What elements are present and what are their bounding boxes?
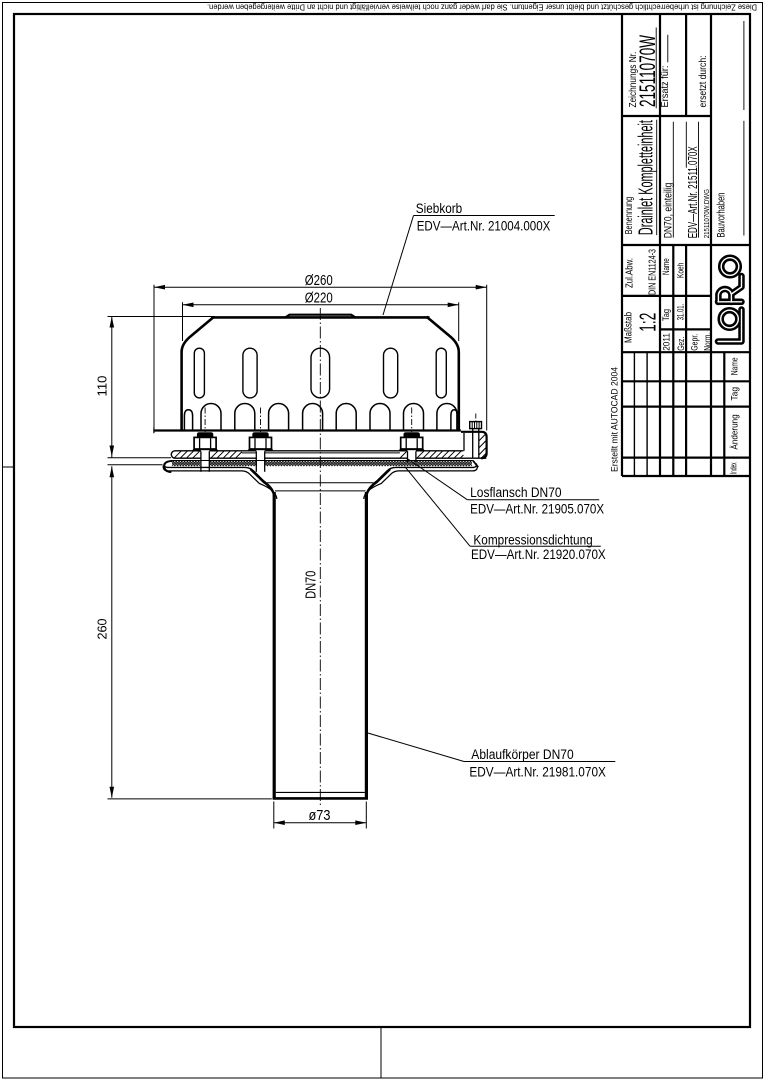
svg-text:Tag: Tag [730, 387, 741, 401]
svg-text:EDV—Art.Nr. 21004.000X: EDV—Art.Nr. 21004.000X [417, 218, 551, 233]
svg-text:Name: Name [661, 258, 672, 275]
svg-text:Name: Name [730, 358, 741, 376]
svg-text:DN70, einteilig: DN70, einteilig [663, 183, 675, 239]
svg-text:Ablaufkörper DN70: Ablaufkörper DN70 [471, 747, 573, 762]
svg-text:Losflansch DN70: Losflansch DN70 [470, 485, 561, 500]
svg-text:110: 110 [95, 376, 110, 397]
svg-text:DIN EN1124-3: DIN EN1124-3 [647, 249, 659, 295]
svg-text:Koeh: Koeh [676, 263, 687, 278]
svg-text:Tag: Tag [661, 309, 672, 321]
svg-text:EDV—Art.Nr. 21511.070X: EDV—Art.Nr. 21511.070X [686, 146, 700, 238]
svg-text:Ø220: Ø220 [305, 291, 333, 307]
svg-text:Drainlet Kompletteinheit: Drainlet Kompletteinheit [636, 120, 658, 235]
svg-text:21511070W.DWG: 21511070W.DWG [702, 189, 711, 238]
svg-text:1:2: 1:2 [635, 313, 661, 332]
svg-text:Maßstab: Maßstab [624, 312, 635, 343]
svg-text:Index: Index [729, 462, 740, 474]
svg-text:Erstellt mit AUTOCAD 2004: Erstellt mit AUTOCAD 2004 [610, 367, 620, 472]
svg-text:Gez.: Gez. [676, 337, 687, 351]
svg-text:Bauvorhaben: Bauvorhaben [716, 193, 728, 238]
svg-text:Kompressionsdichtung: Kompressionsdichtung [473, 532, 592, 547]
svg-text:ø73: ø73 [309, 808, 331, 824]
svg-text:Änderung: Änderung [730, 414, 741, 449]
svg-text:EDV—Art.Nr. 21905.070X: EDV—Art.Nr. 21905.070X [470, 501, 604, 516]
svg-text:Ø260: Ø260 [305, 273, 333, 289]
svg-text:Diese Zeichnung ist urheberrec: Diese Zeichnung ist urheberrechtlich ges… [207, 2, 757, 11]
svg-text:260: 260 [95, 619, 110, 640]
svg-text:Ersatz für:: Ersatz für: [659, 66, 671, 108]
svg-text:EDV—Art.Nr. 21981.070X: EDV—Art.Nr. 21981.070X [469, 764, 606, 779]
svg-text:Benennung: Benennung [624, 197, 635, 235]
svg-text:Gepr.: Gepr. [690, 334, 701, 351]
svg-text:EDV—Art.Nr. 21920.070X: EDV—Art.Nr. 21920.070X [471, 547, 606, 562]
svg-text:Norm.: Norm. [702, 333, 713, 351]
svg-text:Zul.Abw.: Zul.Abw. [625, 258, 636, 288]
svg-text:21511070W: 21511070W [635, 35, 660, 107]
svg-text:DN70: DN70 [303, 571, 320, 599]
svg-text:2011: 2011 [662, 333, 673, 351]
svg-text:Siebkorb: Siebkorb [416, 201, 462, 216]
svg-text:31.01.: 31.01. [676, 304, 687, 321]
svg-text:ersetzt durch:: ersetzt durch: [697, 56, 709, 108]
